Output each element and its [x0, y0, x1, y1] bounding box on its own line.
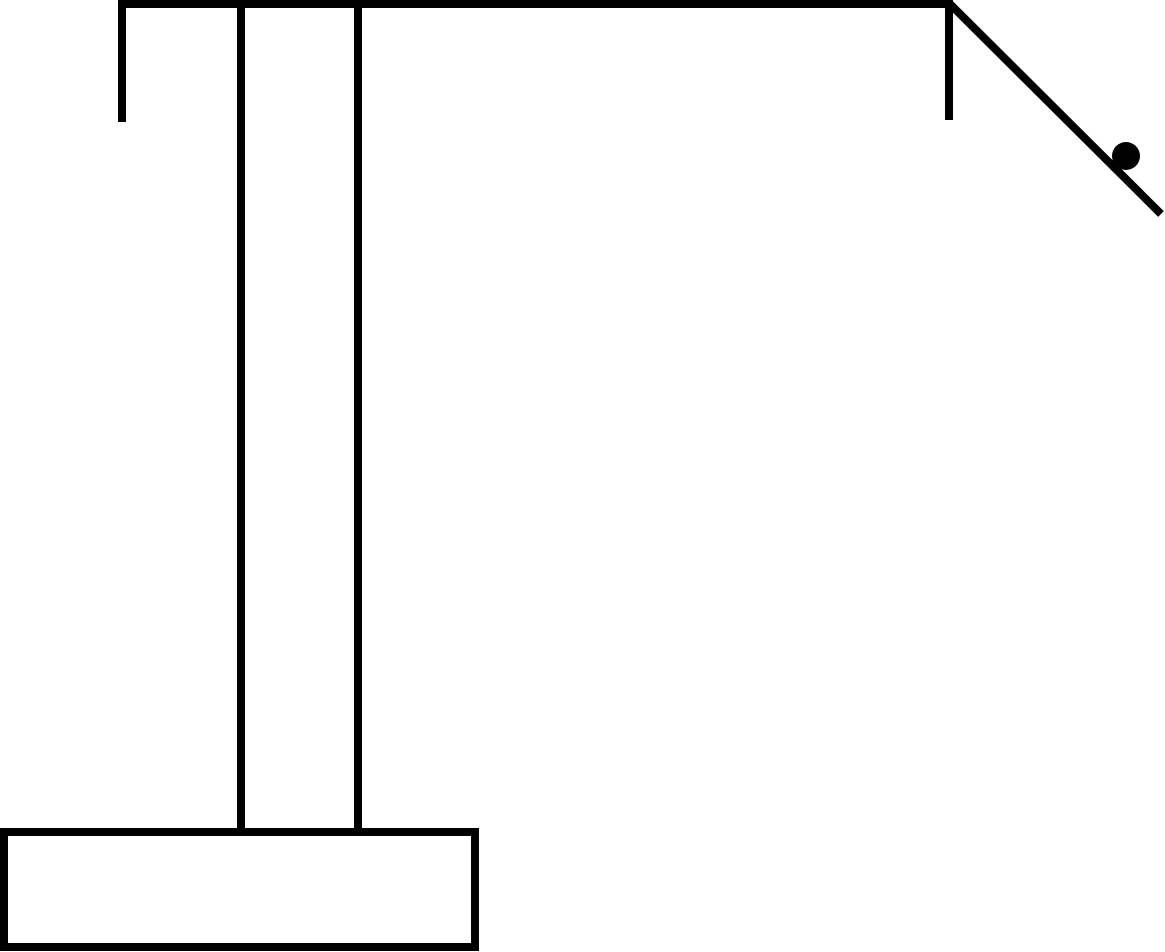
right-bracket — [945, 0, 953, 120]
left-bracket — [118, 0, 126, 122]
column-left-edge — [237, 0, 245, 828]
base-pedestal — [4, 832, 475, 947]
column-right-edge — [354, 0, 362, 828]
figure-svg — [0, 0, 1165, 952]
diagram-canvas — [0, 0, 1165, 952]
ball — [1112, 142, 1140, 170]
ramp-incline — [950, 4, 1161, 214]
